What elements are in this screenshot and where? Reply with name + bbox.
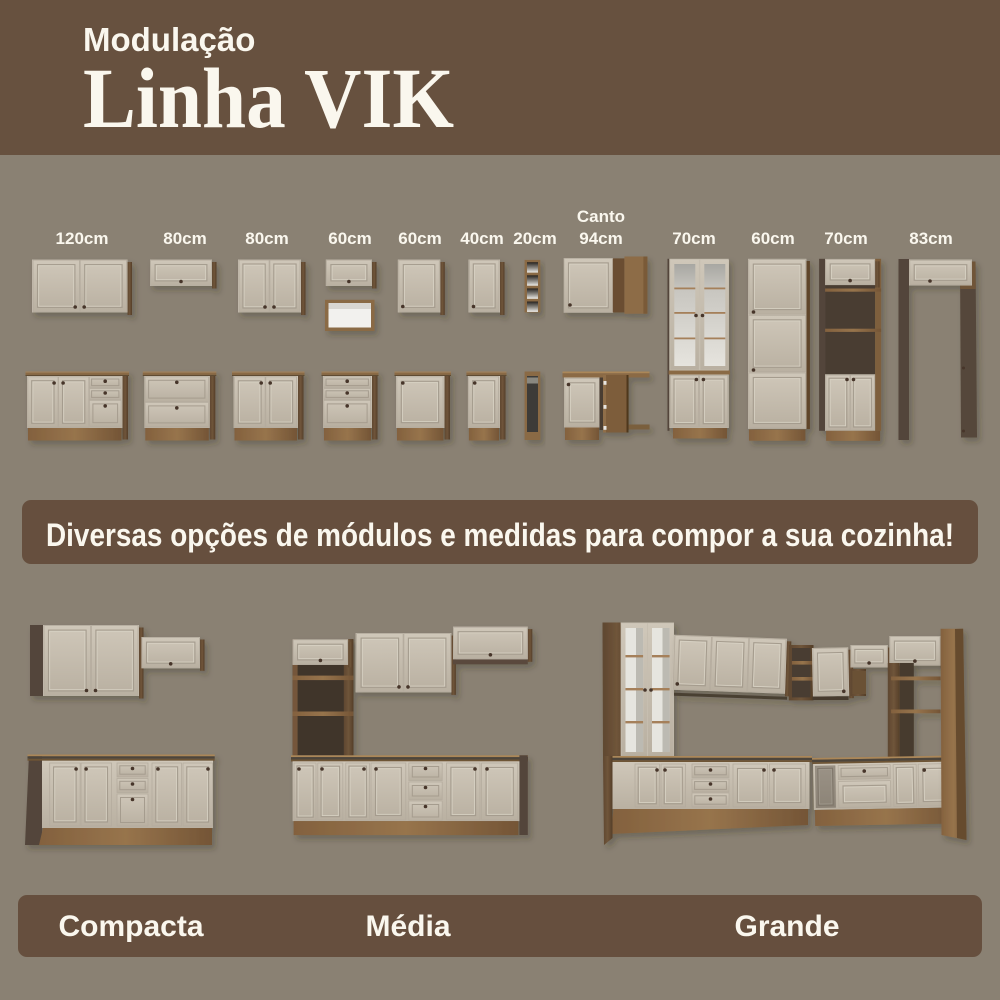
svg-text:94cm: 94cm <box>579 229 622 248</box>
svg-text:60cm: 60cm <box>398 229 441 248</box>
svg-text:Compacta: Compacta <box>58 910 203 943</box>
svg-text:83cm: 83cm <box>909 229 952 248</box>
svg-text:Diversas opções de módulos e m: Diversas opções de módulos e medidas par… <box>46 517 954 553</box>
svg-text:Grande: Grande <box>734 910 839 943</box>
svg-text:60cm: 60cm <box>751 229 794 248</box>
svg-text:Linha VIK: Linha VIK <box>83 50 454 146</box>
svg-text:120cm: 120cm <box>56 229 109 248</box>
svg-text:70cm: 70cm <box>672 229 715 248</box>
svg-text:Média: Média <box>365 910 450 943</box>
svg-text:70cm: 70cm <box>824 229 867 248</box>
svg-text:60cm: 60cm <box>328 229 371 248</box>
svg-text:40cm: 40cm <box>460 229 503 248</box>
svg-text:Canto: Canto <box>577 207 625 226</box>
svg-text:20cm: 20cm <box>513 229 556 248</box>
svg-text:80cm: 80cm <box>245 229 288 248</box>
svg-text:80cm: 80cm <box>163 229 206 248</box>
